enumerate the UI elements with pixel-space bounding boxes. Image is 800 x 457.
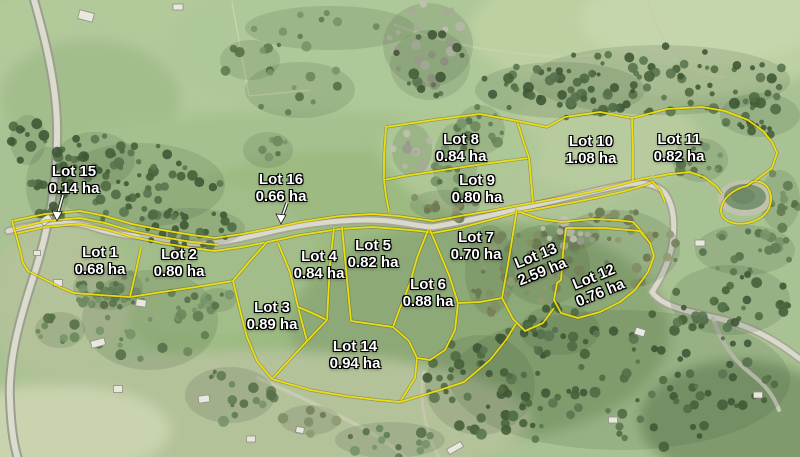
aerial-imagery xyxy=(0,0,800,457)
aerial-subdivision-map: Lot 10.68 ha Lot 20.80 ha Lot 30.89 ha L… xyxy=(0,0,800,457)
